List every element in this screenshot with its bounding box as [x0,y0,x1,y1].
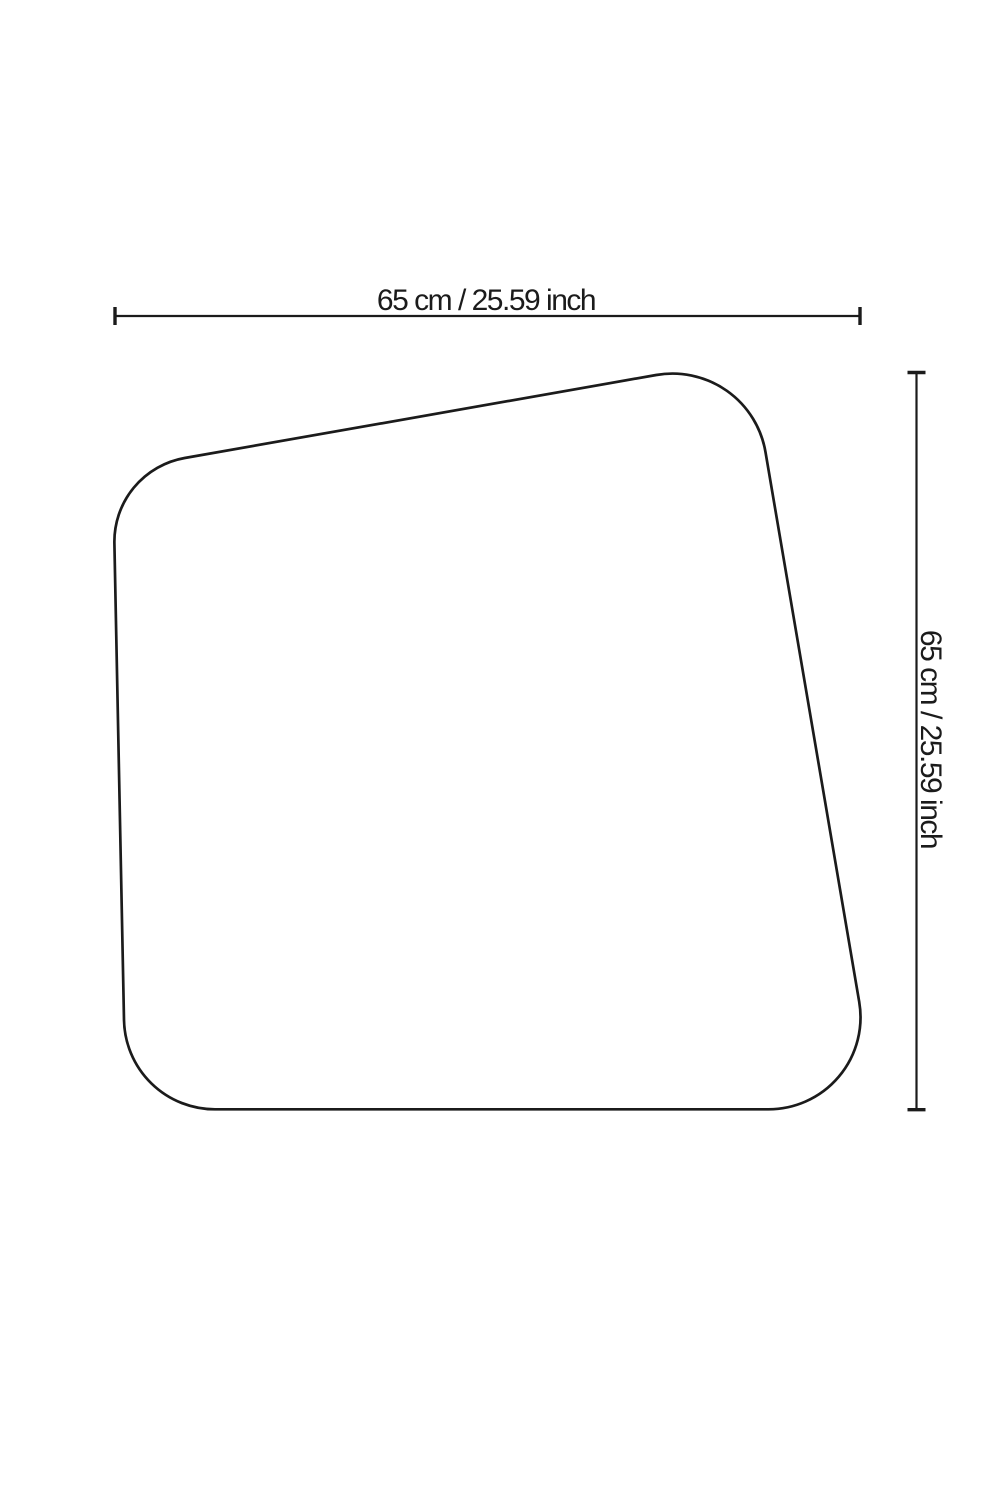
svg-text:65 cm / 25.59 inch: 65 cm / 25.59 inch [914,630,947,848]
svg-text:65 cm / 25.59 inch: 65 cm / 25.59 inch [377,284,595,317]
